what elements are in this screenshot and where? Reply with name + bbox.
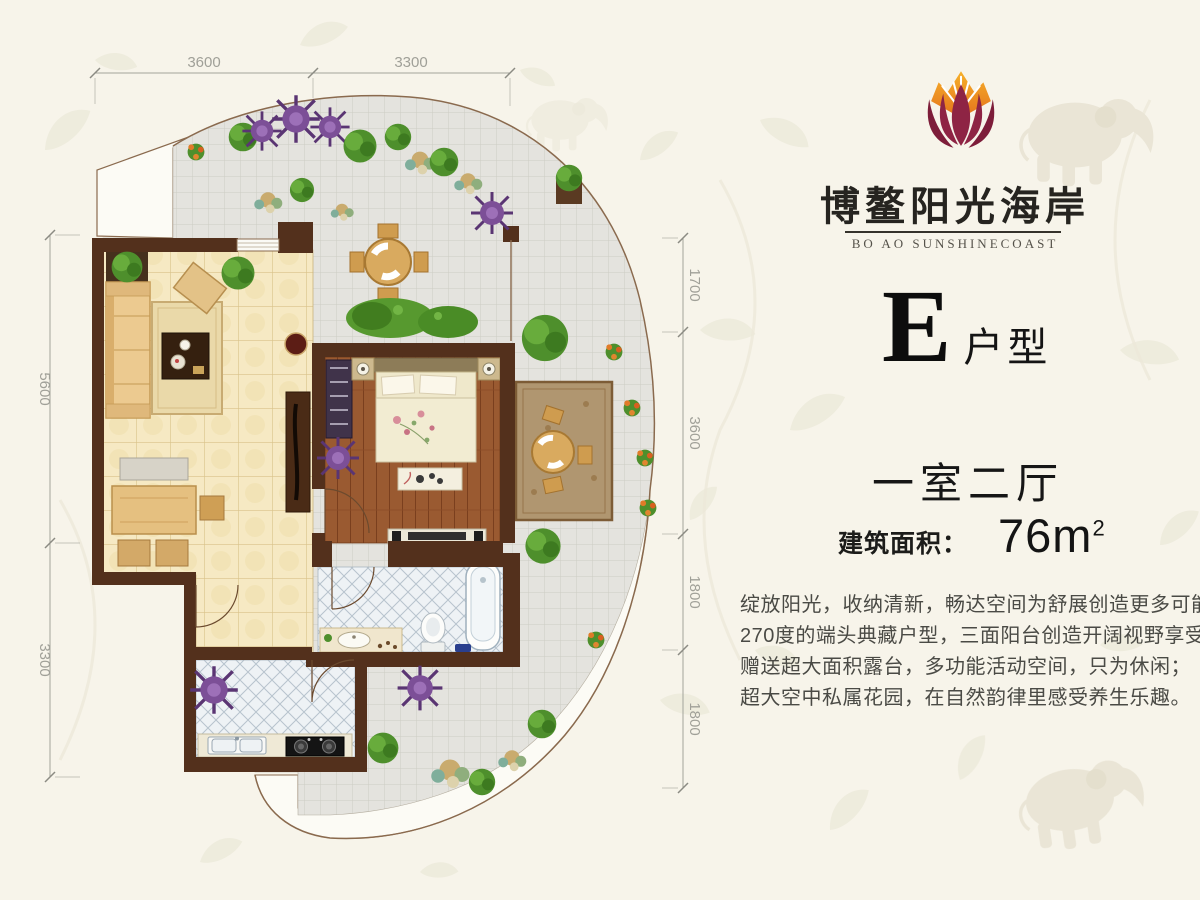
dim-top-2: 3300 <box>394 54 427 71</box>
area-row: 建筑面积： 76m2 <box>838 508 1106 563</box>
area-value: 76m2 <box>998 508 1106 563</box>
bed-bench <box>398 468 462 490</box>
page: 3600 3300 5600 3300 1700 3600 1800 1800 <box>0 0 1200 900</box>
bed <box>374 358 478 462</box>
brand-name-chinese: 博鳌阳光海岸 <box>780 174 1130 232</box>
balcony-rug-set <box>516 382 612 520</box>
unit-letter: E <box>882 280 951 374</box>
dim-right-4: 1800 <box>686 702 703 735</box>
dim-left-2: 3300 <box>36 643 53 676</box>
double-sink <box>208 737 266 755</box>
description-line: 270度的端头典藏户型，三面阳台创造开阔视野享受； <box>740 621 1200 652</box>
dim-top-1: 3600 <box>187 54 220 71</box>
toilet <box>421 613 445 652</box>
vanity-sink <box>320 628 402 652</box>
brand-logo lotus-icon <box>905 60 1017 172</box>
unit-type-label: 户型 <box>963 315 1051 373</box>
bath-mat <box>455 644 471 652</box>
dim-left-1: 5600 <box>36 372 53 405</box>
dim-right-3: 1800 <box>686 575 703 608</box>
floor-plan: 3600 3300 5600 3300 1700 3600 1800 1800 <box>0 0 720 860</box>
decor-bowl <box>285 333 307 355</box>
description-line: 赠送超大面积露台，多功能活动空间，只为休闲； <box>740 652 1200 683</box>
sofa <box>106 282 150 418</box>
living-window <box>237 239 279 251</box>
kitchen-fixtures <box>198 734 352 757</box>
gas-stove <box>286 737 344 756</box>
description-line: 超大空中私属花园，在自然韵律里感受养生乐趣。 <box>740 683 1200 714</box>
brand-name-english: BO AO SUNSHINECOAST <box>780 236 1130 252</box>
area-label: 建筑面积： <box>838 524 968 560</box>
dim-right-2: 3600 <box>686 416 703 449</box>
wardrobe <box>326 360 352 438</box>
description-paragraph: 绽放阳光，收纳清新，畅达空间为舒展创造更多可能； 270度的端头典藏户型，三面阳… <box>740 590 1200 714</box>
unit-title: E 户型 <box>882 280 1051 374</box>
layout-summary: 一室二厅 <box>872 450 1064 511</box>
description-line: 绽放阳光，收纳清新，畅达空间为舒展创造更多可能； <box>740 590 1200 621</box>
area-superscript: 2 <box>1092 515 1105 540</box>
brand-divider <box>845 231 1061 233</box>
coffee-table <box>162 333 209 379</box>
dim-right-1: 1700 <box>686 268 703 301</box>
